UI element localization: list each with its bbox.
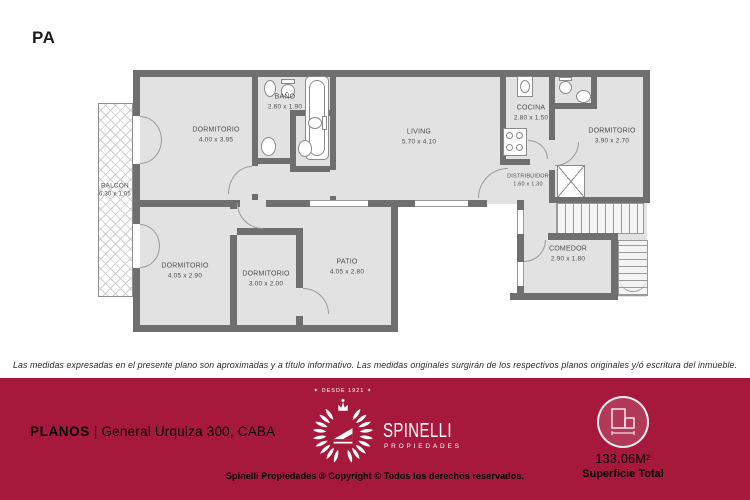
room-label-dormitorio-3: DORMITORIO3.00 x 2.00 (242, 270, 289, 289)
brand-emblem-icon (334, 428, 353, 443)
sink-icon-bath (261, 137, 276, 156)
sink-icon-2 (576, 90, 591, 103)
surface-value: 133.06M² (548, 452, 698, 466)
plan-address-line: PLANOS | General Urquiza 300, CABA (30, 424, 275, 439)
surface-plan-icon (609, 407, 637, 437)
floor-plan-sheet: PA (0, 0, 750, 500)
measurements-disclaimer: Las medidas expresadas en el presente pl… (0, 360, 750, 370)
wall-right-upper (643, 70, 650, 203)
surface-badge (597, 396, 649, 448)
wall-toilette-left (290, 110, 296, 172)
crown-icon (338, 399, 347, 411)
window-comedor-2 (517, 262, 524, 286)
sink-icon-toilette (298, 140, 312, 157)
balcony-door-opening-2 (133, 224, 140, 268)
window-comedor-1 (517, 210, 524, 234)
room-label-cocina: COCINA2.80 x 1.50 (514, 104, 548, 123)
doc-type-label: PLANOS (30, 424, 90, 439)
balcony-door-opening-1 (133, 116, 140, 164)
stove-icon (503, 128, 527, 156)
laurel-wreath-logo (306, 396, 380, 466)
toilet-icon-toilette (308, 117, 322, 129)
room-label-comedor: COMEDOR2.90 x 1.80 (549, 245, 587, 264)
address-text: General Urquiza 300, CABA (101, 424, 275, 439)
wall-kitchen-bottom (500, 159, 530, 165)
wall-dormR-bottom (555, 197, 650, 203)
wall-dorm3-top (237, 228, 303, 235)
wall-patio-left (296, 228, 303, 332)
toilet-bowl-icon-2 (559, 81, 572, 94)
stairs-turn-mark (620, 268, 646, 292)
wall-bottom-left (133, 325, 398, 332)
stairs-start-box (557, 165, 585, 198)
door-gap-dorm1 (252, 166, 258, 194)
wall-toilette2-bottom (555, 103, 595, 109)
door-gap-hall-living (330, 170, 336, 196)
wall-comedor-bottom (510, 293, 618, 300)
kitchen-sink-basin (520, 80, 530, 93)
room-label-bano: BAÑO2.60 x 1.90 (268, 93, 302, 112)
door-gap-patio (296, 288, 303, 316)
window-patio (310, 200, 368, 207)
floor-plan-drawing: DORMITORIO4.00 x 3.95 BAÑO2.60 x 1.90 LI… (0, 0, 750, 350)
room-label-patio: PATIO4.05 x 2.80 (330, 258, 364, 277)
brand-since-label: ✦ DESDE 1921 ✦ (300, 388, 386, 394)
window-living (415, 200, 468, 207)
door-gap-dorm-divider (230, 209, 237, 235)
brand-name: SPINELLI (383, 420, 452, 443)
wall-top (133, 70, 650, 77)
room-label-distribuidor: DISTRIBUIDOR1.60 x 1.30 (507, 173, 549, 188)
stairs-upper-run (556, 203, 644, 234)
wall-comedor-right (611, 240, 618, 300)
wall-toilette-bottom (290, 166, 334, 172)
room-label-dormitorio-1: DORMITORIO4.00 x 3.95 (192, 126, 239, 145)
room-label-dormitorio-right: DORMITORIO3.90 x 2.70 (588, 127, 635, 146)
address-separator: | (94, 424, 98, 439)
surface-label: Superficie Total (548, 468, 698, 480)
wall-toilette2-right (591, 77, 597, 109)
brand-subtitle: PROPIEDADES (384, 443, 462, 450)
door-gap-comedor (524, 233, 548, 240)
toilet-tank-toilette (322, 116, 327, 130)
wall-patio-right (391, 200, 398, 332)
balcony-area (98, 103, 133, 297)
room-label-living: LIVING5.70 x 4.10 (402, 128, 436, 147)
room-label-dormitorio-2: DORMITORIO4.05 x 2.90 (161, 262, 208, 281)
room-label-balcon: BALCÓN6.30 x 1.05 (99, 181, 131, 198)
